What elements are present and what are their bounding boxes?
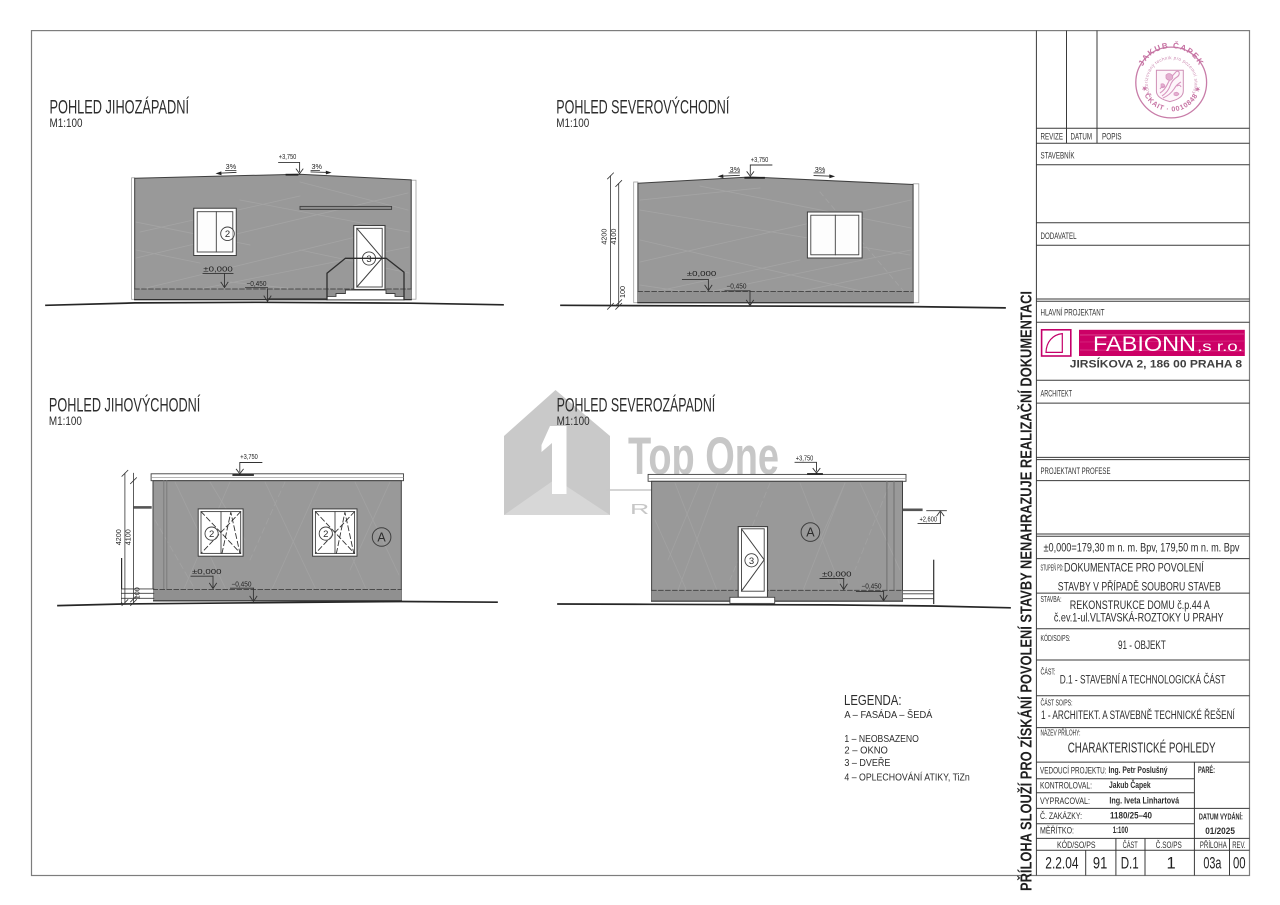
svg-text:±0,000: ±0,000	[203, 265, 233, 274]
svg-text:M1:100: M1:100	[50, 116, 83, 130]
svg-text:4200: 4200	[602, 228, 609, 244]
svg-text:Č. ZAKÁZKY:: Č. ZAKÁZKY:	[1040, 811, 1082, 821]
svg-text:±0,000: ±0,000	[822, 570, 852, 579]
svg-text:00: 00	[1233, 855, 1246, 873]
svg-text:+3,750: +3,750	[751, 155, 769, 164]
svg-text:HLAVNÍ PROJEKTANT: HLAVNÍ PROJEKTANT	[1041, 307, 1105, 318]
svg-text:+3,750: +3,750	[240, 452, 257, 461]
svg-text:LEGENDA:: LEGENDA:	[844, 693, 902, 709]
svg-text:PARÉ:: PARÉ:	[1198, 765, 1215, 775]
svg-text:1: 1	[1167, 855, 1176, 873]
svg-text:ČÁST SO/PS:: ČÁST SO/PS:	[1041, 699, 1073, 708]
svg-text:Jakub Čapek: Jakub Čapek	[1109, 779, 1151, 791]
svg-text:M1:100: M1:100	[556, 116, 589, 130]
svg-text:NÁZEV PŘÍLOHY:: NÁZEV PŘÍLOHY:	[1041, 729, 1081, 738]
svg-text:3: 3	[749, 556, 754, 567]
svg-text:4100: 4100	[611, 228, 618, 244]
svg-text:4200: 4200	[116, 529, 123, 545]
svg-text:D.1 - STAVEBNÍ A TECHNOLOGICKÁ: D.1 - STAVEBNÍ A TECHNOLOGICKÁ ČÁST	[1060, 673, 1226, 686]
svg-text:č.ev.1-ul.VLTAVSKÁ-ROZTOKY U P: č.ev.1-ul.VLTAVSKÁ-ROZTOKY U PRAHY	[1054, 612, 1224, 625]
svg-text:+3,750: +3,750	[796, 453, 814, 462]
svg-text:PŘÍLOHA SLOUŽÍ PRO ZÍSKÁNÍ POV: PŘÍLOHA SLOUŽÍ PRO ZÍSKÁNÍ POVOLENÍ STAV…	[1017, 291, 1036, 891]
svg-text:REV.: REV.	[1232, 840, 1245, 850]
svg-text:Ing. Petr Poslušný: Ing. Petr Poslušný	[1109, 765, 1169, 776]
svg-text:Č.SO/PS: Č.SO/PS	[1156, 840, 1182, 850]
svg-text:D.1: D.1	[1121, 855, 1139, 873]
svg-text:±0,000: ±0,000	[687, 269, 717, 278]
svg-text:M1:100: M1:100	[557, 414, 590, 428]
svg-text:POPIS: POPIS	[1102, 131, 1122, 142]
svg-text:3 – DVEŘE: 3 – DVEŘE	[844, 756, 890, 769]
svg-text:2: 2	[225, 229, 230, 240]
svg-text:±0,000=179,30 m n. m. Bpv, 179: ±0,000=179,30 m n. m. Bpv, 179,50 m n. m…	[1044, 543, 1240, 555]
svg-text:2 – OKNO: 2 – OKNO	[844, 746, 888, 757]
svg-text:PROJEKTANT PROFESE: PROJEKTANT PROFESE	[1041, 466, 1111, 477]
svg-text:STAVBY V PŘÍPADĚ SOUBORU STAVE: STAVBY V PŘÍPADĚ SOUBORU STAVEB	[1058, 581, 1221, 594]
svg-text:KÓD/SO/PS: KÓD/SO/PS	[1057, 840, 1096, 850]
svg-text:91 - OBJEKT: 91 - OBJEKT	[1118, 640, 1166, 652]
svg-text:STAVEBNÍK: STAVEBNÍK	[1041, 151, 1075, 162]
svg-text:FABIONN: FABIONN	[1093, 333, 1196, 356]
svg-text:DODAVATEL: DODAVATEL	[1041, 231, 1077, 242]
svg-text:JIRSÍKOVA 2, 186 00 PRAHA 8: JIRSÍKOVA 2, 186 00 PRAHA 8	[1070, 358, 1242, 371]
svg-text:4100: 4100	[125, 529, 132, 545]
svg-text:VYPRACOVAL:: VYPRACOVAL:	[1040, 796, 1090, 806]
svg-text:A: A	[377, 531, 386, 545]
svg-text:+3,750: +3,750	[279, 152, 297, 161]
svg-text:2.2.04: 2.2.04	[1045, 855, 1078, 873]
svg-text:2: 2	[323, 529, 328, 540]
svg-text:DATUM VYDÁNÍ:: DATUM VYDÁNÍ:	[1199, 812, 1243, 822]
svg-text:ČÁST: ČÁST	[1123, 840, 1139, 850]
svg-text:STUPEŇ PD:: STUPEŇ PD:	[1041, 564, 1064, 573]
svg-text:03a: 03a	[1203, 855, 1222, 873]
svg-text:2: 2	[209, 529, 214, 540]
svg-text:+2,600: +2,600	[920, 515, 938, 524]
svg-text:−0,450: −0,450	[862, 582, 882, 591]
svg-text:REKONSTRUKCE DOMU č.p.44 A: REKONSTRUKCE DOMU č.p.44 A	[1070, 600, 1210, 612]
svg-text:PŘÍLOHA: PŘÍLOHA	[1200, 840, 1227, 850]
svg-text:DOKUMENTACE PRO POVOLENÍ: DOKUMENTACE PRO POVOLENÍ	[1064, 562, 1204, 575]
svg-text:−0,450: −0,450	[232, 580, 252, 589]
svg-text:100: 100	[135, 587, 142, 599]
svg-text:VEDOUCÍ PROJEKTU:: VEDOUCÍ PROJEKTU:	[1040, 765, 1107, 775]
svg-text:ČÁST:: ČÁST:	[1041, 668, 1056, 677]
svg-text:1180/25–40: 1180/25–40	[1110, 811, 1152, 822]
svg-text:91: 91	[1093, 855, 1107, 873]
svg-text:KÓD/SO/PS:: KÓD/SO/PS:	[1041, 634, 1071, 643]
svg-text:100: 100	[620, 286, 627, 298]
svg-text:CHARAKTERISTICKÉ POHLEDY: CHARAKTERISTICKÉ POHLEDY	[1068, 739, 1216, 756]
svg-text:Ing. Iveta Linhartová: Ing. Iveta Linhartová	[1109, 795, 1179, 806]
svg-text:−0,450: −0,450	[727, 281, 747, 290]
svg-text:DATUM: DATUM	[1071, 131, 1093, 142]
svg-text:MĚŘÍTKO:: MĚŘÍTKO:	[1040, 826, 1074, 836]
svg-text:3: 3	[366, 254, 371, 265]
svg-text:1:100: 1:100	[1113, 825, 1128, 836]
svg-text:A – FASÁDA – ŠEDÁ: A – FASÁDA – ŠEDÁ	[844, 708, 932, 721]
svg-text:01/2025: 01/2025	[1205, 826, 1235, 837]
svg-text:,s r.o.: ,s r.o.	[1197, 339, 1243, 354]
svg-text:1 – NEOBSAZENO: 1 – NEOBSAZENO	[844, 734, 919, 745]
svg-text:1 - ARCHITEKT. A STAVEBNĚ TECH: 1 - ARCHITEKT. A STAVEBNĚ TECHNICKÉ ŘEŠE…	[1041, 709, 1235, 722]
svg-text:M1:100: M1:100	[49, 414, 82, 428]
svg-text:REVIZE: REVIZE	[1041, 131, 1064, 142]
svg-text:A: A	[806, 526, 815, 540]
svg-text:STAVBA:: STAVBA:	[1041, 595, 1062, 604]
svg-text:−0,450: −0,450	[247, 279, 267, 288]
svg-text:KONTROLOVAL:: KONTROLOVAL:	[1040, 781, 1092, 791]
svg-text:4 – OPLECHOVÁNÍ ATIKY, TiZn: 4 – OPLECHOVÁNÍ ATIKY, TiZn	[844, 770, 969, 783]
svg-text:±0,000: ±0,000	[192, 567, 222, 576]
svg-text:ARCHITEKT: ARCHITEKT	[1041, 388, 1073, 399]
